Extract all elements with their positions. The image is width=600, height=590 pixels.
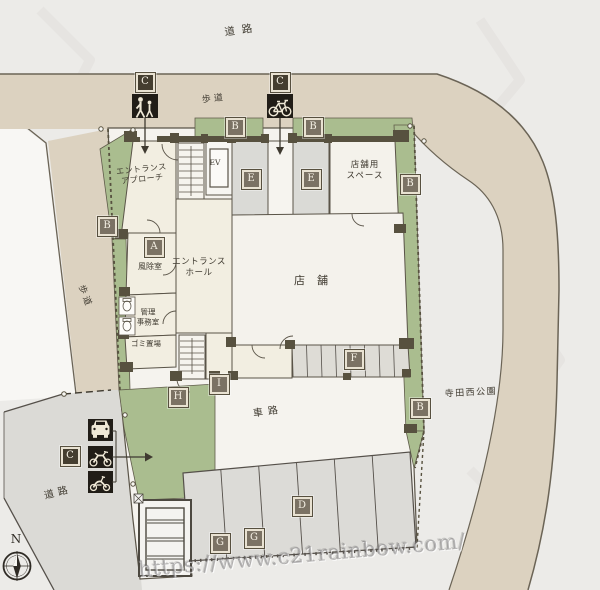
elevator-label: EV [210,158,221,168]
road-bottom-label: 道路 [43,483,73,502]
sidewalk-left-label: 歩道 [74,284,93,311]
entrance-approach-label: エントランス アプローチ [116,162,169,188]
store-space-label: 店舗用 スペース [347,160,384,182]
marker-b: B [410,398,431,419]
marker-i: I [209,374,230,395]
site-plan: https://www.c21rainbow.com/ N 道路歩道歩道エントラ… [0,0,600,590]
marker-g: G [244,528,265,549]
store-label: 店舗 [294,274,340,288]
marker-b: B [400,174,421,195]
driveway-label: 車路 [252,403,284,420]
marker-a: A [144,237,165,258]
marker-b: B [303,117,324,138]
road-top-label: 道路 [224,22,261,40]
sidewalk-top-label: 歩道 [201,93,226,107]
marker-f: F [344,349,365,370]
marker-c: C [60,446,81,467]
labels-overlay: https://www.c21rainbow.com/ N 道路歩道歩道エントラ… [0,0,600,590]
entrance-hall-label: エントランス ホール [172,257,226,279]
park-label: 寺田西公園 [444,387,497,401]
marker-e: E [301,169,322,190]
compass-north-label: N [11,532,22,548]
marker-g: G [210,533,231,554]
marker-e: E [241,169,262,190]
marker-b: B [97,216,118,237]
marker-b: B [225,117,246,138]
garbage-area-label: ゴミ置場 [131,339,161,349]
windbreak-room-label: 風除室 [138,262,162,272]
marker-c: C [135,72,156,93]
management-office-label: 管理 事務室 [137,307,160,327]
marker-d: D [292,496,313,517]
watermark: https://www.c21rainbow.com/ [137,528,467,584]
marker-c: C [270,72,291,93]
marker-h: H [168,387,189,408]
